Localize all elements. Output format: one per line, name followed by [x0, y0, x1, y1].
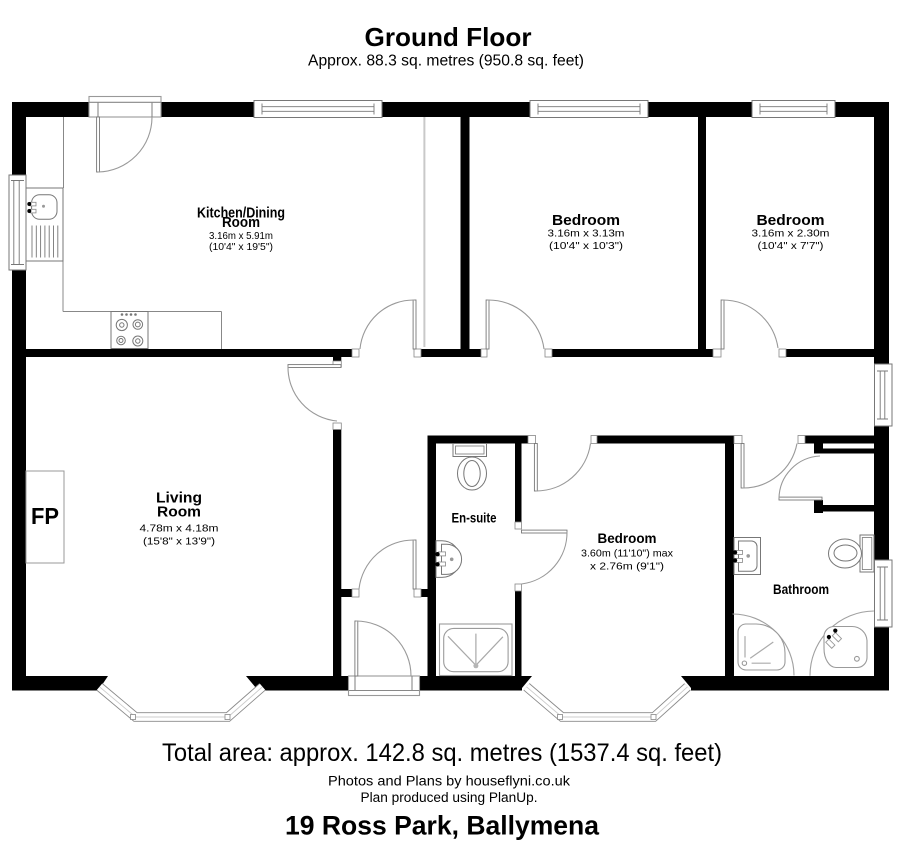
svg-text:(10'4" x 7'7"): (10'4" x 7'7"): [758, 240, 824, 252]
svg-text:En-suite: En-suite: [452, 511, 497, 526]
svg-text:Photos and Plans by houseflyni: Photos and Plans by houseflyni.co.uk: [328, 774, 570, 789]
svg-text:Plan produced using PlanUp.: Plan produced using PlanUp.: [361, 790, 538, 805]
svg-text:19 Ross Park, Ballymena: 19 Ross Park, Ballymena: [285, 811, 600, 841]
svg-text:Approx. 88.3 sq. metres (950.8: Approx. 88.3 sq. metres (950.8 sq. feet): [308, 53, 584, 70]
svg-text:Bedroom: Bedroom: [757, 212, 825, 229]
svg-text:(10'4" x 10'3"): (10'4" x 10'3"): [549, 240, 623, 252]
svg-text:Bedroom: Bedroom: [598, 530, 657, 546]
svg-text:3.16m x 3.13m: 3.16m x 3.13m: [548, 227, 625, 239]
svg-text:3.60m (11'10") max: 3.60m (11'10") max: [581, 548, 674, 560]
svg-text:3.16m x 2.30m: 3.16m x 2.30m: [752, 228, 830, 240]
svg-text:Ground Floor: Ground Floor: [365, 22, 532, 52]
svg-text:FP: FP: [31, 503, 59, 529]
svg-text:4.78m x 4.18m: 4.78m x 4.18m: [140, 522, 219, 534]
svg-text:Room: Room: [222, 214, 260, 231]
svg-text:(15'8" x 13'9"): (15'8" x 13'9"): [143, 536, 215, 548]
svg-text:Bathroom: Bathroom: [773, 582, 829, 597]
svg-text:x 2.76m (9'1"): x 2.76m (9'1"): [590, 561, 664, 573]
svg-text:Room: Room: [157, 504, 201, 521]
svg-text:(10'4" x 19'5"): (10'4" x 19'5"): [209, 241, 273, 253]
svg-text:Total area: approx. 142.8 sq.: Total area: approx. 142.8 sq. metres (15…: [162, 739, 722, 767]
